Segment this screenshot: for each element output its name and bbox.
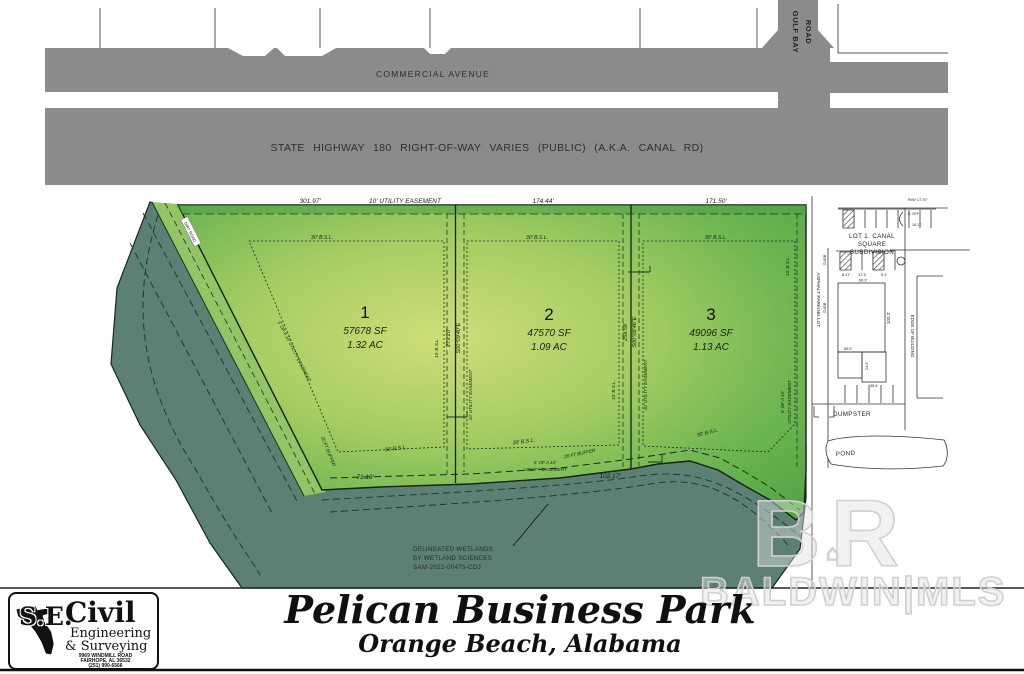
dim-lot1-frontage: 301.97': [299, 198, 321, 205]
bsl10-label: 10' B.S.L.: [434, 338, 439, 358]
lot-area-sf: 49096 SF: [689, 328, 733, 339]
front-easement-strip: [178, 205, 806, 214]
dim-1032: 103.2': [886, 312, 891, 324]
commercial-avenue-east: [830, 62, 948, 93]
dim-bottom1: 71.19': [356, 474, 374, 481]
dim-249: 24.9': [864, 361, 869, 370]
state-highway-label: STATE HIGHWAY 180 RIGHT-OF-WAY VARIES (P…: [271, 142, 704, 154]
lot-area-ac: 1.32 AC: [347, 340, 384, 351]
wetlands-note-l3: SAM-2022-00475-CDJ: [413, 564, 481, 571]
easement-lot12: 10' UTILITY EASEMENT: [468, 368, 473, 420]
dim-lot12-line: 279.28': [446, 328, 452, 348]
dim-179: 17.9: [858, 272, 867, 277]
bsl-label: 30' B.S.L.: [311, 235, 333, 241]
easement-lot23: 10' UTILITY EASEMENT: [643, 358, 648, 410]
bsl10-label: 10' B.S.L.: [611, 380, 616, 400]
dim-91: 9.1': [881, 272, 888, 277]
lot-area-sf: 57678 SF: [343, 326, 387, 337]
bearing-lot12-line: S00°09'40"E: [456, 322, 462, 353]
subdivision-l3: SUBDIVISION: [850, 249, 894, 256]
subdivision-l1: LOT 1. CANAL: [849, 233, 895, 240]
wetlands-note-l2: BY WETLAND SCIENCES: [413, 555, 492, 562]
lot-area-ac: 1.13 AC: [693, 342, 730, 353]
easement-bottom-l2: UTILITY EASEMENT: [523, 467, 568, 472]
bsl-label: 30' B.S.L.: [705, 235, 727, 241]
title-block: Pelican Business Park Orange Beach, Alab…: [240, 590, 800, 658]
easement-bottom-l1: 5' OF A 10': [534, 460, 556, 465]
dim-1817: 18.17': [912, 223, 922, 227]
dim-off: 8' OFF: [908, 212, 920, 216]
east-parcel-labels: LOT 1. CANAL SQUARE SUBDIVISION ASPHALT …: [815, 197, 928, 458]
curb-label: CURB: [823, 254, 827, 265]
lot-number: 2: [544, 305, 553, 324]
dim-lot23-line: 259.58': [623, 322, 629, 342]
house-icon: ⌂: [826, 540, 839, 566]
logo-civil-text: Civil: [65, 596, 135, 629]
dim-bottom2: 102.17': [599, 473, 621, 480]
commercial-avenue-label: COMMERCIAL AVENUE: [376, 69, 490, 79]
logo-surveying-text: & Surveying: [65, 639, 147, 654]
dim-300: 30.0': [844, 346, 853, 351]
edge-of-building-bracket: [917, 276, 943, 398]
dim-817: 8.17': [842, 272, 851, 277]
dim-304: 30.4': [870, 383, 879, 388]
asphalt-parking-label: ASPHALT PARKING LOT: [815, 273, 821, 328]
se-civil-logo: S.E. Civil Engineering & Surveying 9969 …: [8, 592, 159, 670]
wetlands-note-l1: DELINEATED WETLANDS: [413, 546, 493, 553]
easement-right-l1: 5' OF A 10': [780, 391, 785, 413]
gulf-bay-road-label2: ROAD: [804, 20, 813, 44]
lot-area-sf: 47570 SF: [527, 328, 571, 339]
dim-rw: R/W 17.97': [908, 197, 928, 202]
edge-of-building-label: EDGE OF BUILDING: [910, 315, 915, 358]
gulf-bay-road-label: GULF BAY: [791, 11, 800, 53]
dim-lot2-frontage: 174.44': [532, 198, 554, 205]
hatched-stall: [843, 210, 854, 228]
pond-label: POND: [836, 450, 856, 458]
dim-lot3-frontage: 171.50': [705, 198, 727, 205]
page-subtitle: Orange Beach, Alabama: [240, 630, 800, 658]
lot-number: 1: [360, 303, 369, 322]
page-title: Pelican Business Park: [240, 590, 800, 630]
dumpster-label: DUMPSTER: [833, 411, 871, 418]
site-plan-document: COMMERCIAL AVENUE STATE HIGHWAY 180 RIGH…: [0, 0, 1024, 674]
logo-phone: (251) 990-6566: [58, 663, 153, 669]
bearing-lot23-line: S00°08'46"E: [632, 316, 638, 347]
lot-number: 3: [706, 305, 715, 324]
bsl10-label: 10' B.S.L.: [785, 256, 790, 276]
dim-603: 60.3': [859, 278, 868, 283]
lot-area-ac: 1.09 AC: [531, 342, 568, 353]
utility-easement-label: 10' UTILITY EASEMENT: [369, 198, 442, 205]
bsl-label: 30' B.S.L.: [526, 235, 548, 241]
subdivision-l2: SQUARE: [858, 241, 887, 248]
dumpster-symbol: [814, 406, 834, 417]
br-logo: BR: [752, 487, 909, 582]
easement-right-l2: UTILITY EASEMENT: [787, 379, 792, 424]
curb-label: CURB: [823, 302, 827, 313]
